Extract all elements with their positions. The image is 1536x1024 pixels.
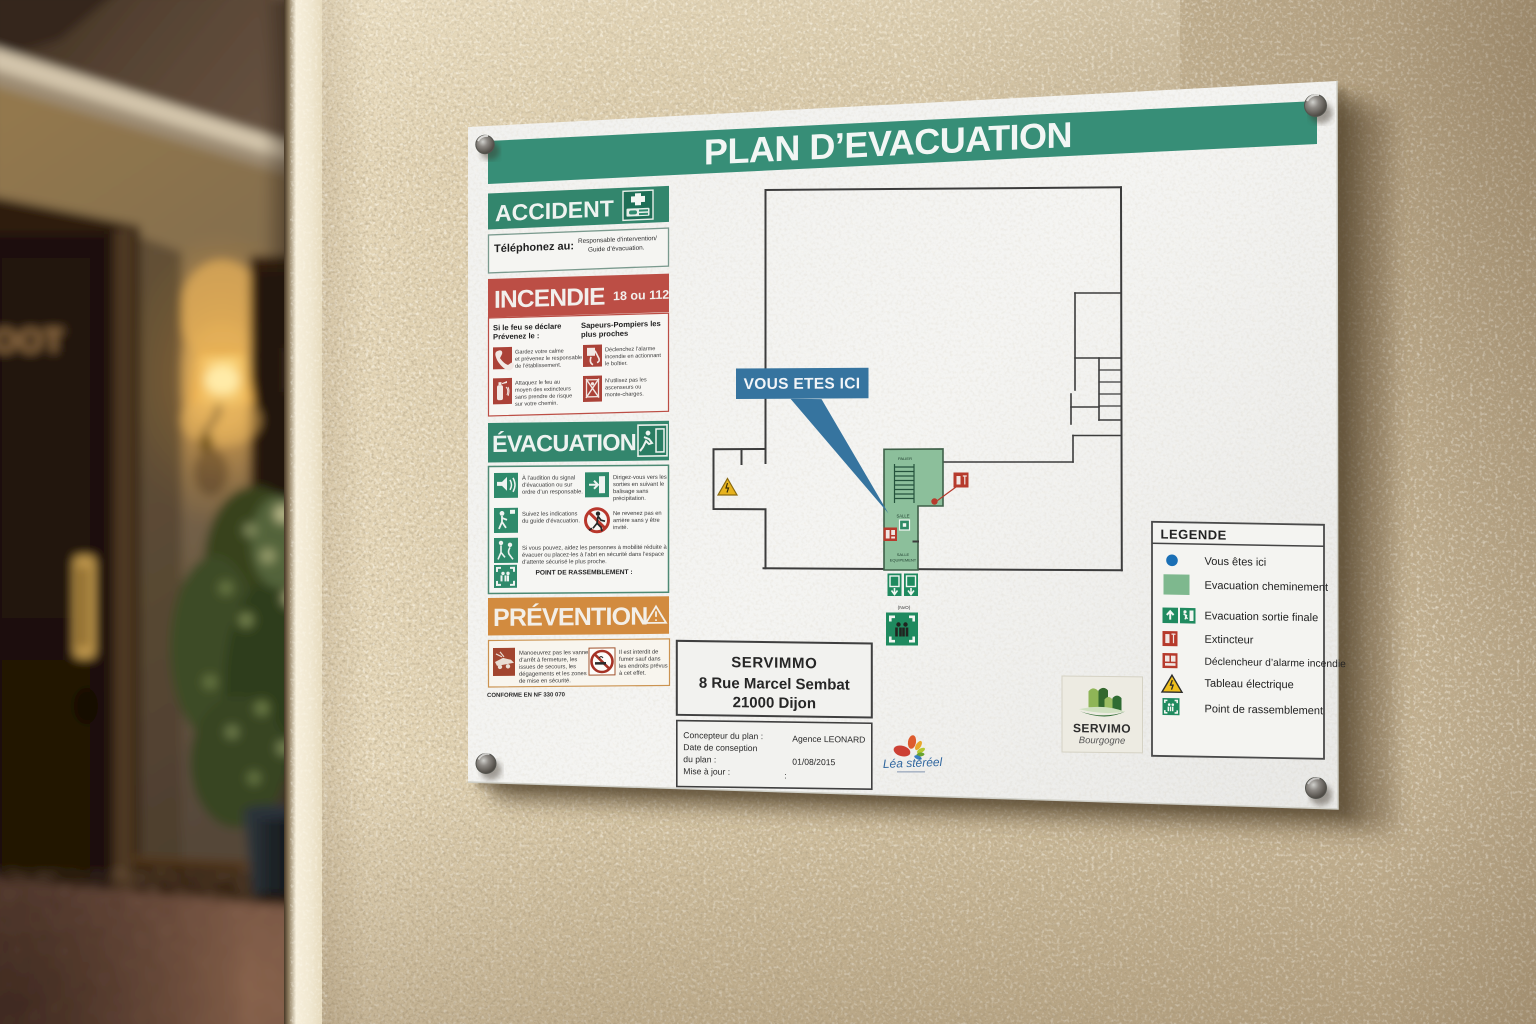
svg-text:Concepteur du plan :: Concepteur du plan :: [683, 730, 763, 741]
svg-text:du plan :: du plan :: [683, 754, 716, 764]
svg-text:d’évacuation ou sur: d’évacuation ou sur: [522, 482, 572, 488]
svg-text:ordre d’un responsable.: ordre d’un responsable.: [522, 489, 583, 495]
svg-text:monte-charges.: monte-charges.: [605, 391, 644, 398]
svg-text:de l’établissement.: de l’établissement.: [515, 363, 562, 370]
svg-text:(NvO): (NvO): [898, 605, 911, 611]
svg-text:Mise à jour :: Mise à jour :: [683, 766, 730, 777]
svg-text:POINT DE RASSEMBLEMENT :: POINT DE RASSEMBLEMENT :: [535, 569, 632, 577]
svg-text:ACCIDENT: ACCIDENT: [495, 195, 614, 226]
svg-text:SERVIMO: SERVIMO: [1073, 721, 1131, 736]
svg-text:ascenseurs ou: ascenseurs ou: [605, 384, 641, 391]
svg-text:LEGENDE: LEGENDE: [1161, 526, 1227, 542]
svg-text:Dirigez-vous vers les: Dirigez-vous vers les: [613, 475, 667, 481]
svg-text:balisage sans: balisage sans: [613, 489, 649, 495]
svg-text:sur votre chemin.: sur votre chemin.: [515, 401, 558, 408]
svg-text:Si vous pouvez, aidez les pers: Si vous pouvez, aidez les personnes à mo…: [522, 545, 667, 552]
svg-text:EQUIPEMENT: EQUIPEMENT: [890, 558, 917, 563]
svg-text:plus proches: plus proches: [581, 329, 628, 339]
svg-text:invité.: invité.: [613, 525, 629, 531]
svg-text:21000 Dijon: 21000 Dijon: [733, 694, 816, 712]
svg-text:Date de conseption: Date de conseption: [683, 742, 757, 753]
svg-text:d’arrêt à fermeture, les: d’arrêt à fermeture, les: [519, 657, 577, 664]
svg-text:Léa stéréel: Léa stéréel: [883, 755, 943, 771]
svg-text:Suivez les indications: Suivez les indications: [522, 511, 578, 517]
svg-text:Il est interdit de: Il est interdit de: [619, 650, 658, 656]
svg-text:Ne revenez pas en: Ne revenez pas en: [613, 511, 662, 517]
svg-text:Evacuation sortie finale: Evacuation sortie finale: [1205, 610, 1319, 624]
svg-text:à cet effet.: à cet effet.: [619, 671, 646, 677]
svg-text:Evacuation cheminement: Evacuation cheminement: [1205, 580, 1329, 594]
svg-text:Point de rassemblement: Point de rassemblement: [1205, 703, 1324, 717]
svg-text:N’utilisez pas les: N’utilisez pas les: [605, 377, 647, 384]
svg-text:SERVIMMO: SERVIMMO: [731, 654, 817, 672]
svg-text:VOUS ETES ICI: VOUS ETES ICI: [744, 375, 861, 393]
svg-text:d’attente sécurisé le plus pro: d’attente sécurisé le plus proche.: [522, 559, 607, 566]
svg-text:Prévenez le :: Prévenez le :: [493, 331, 539, 341]
svg-text:fumer sauf dans: fumer sauf dans: [619, 656, 661, 662]
svg-text:Manoeuvrez pas les vannes: Manoeuvrez pas les vannes: [519, 650, 591, 657]
svg-text:À l’audition du signal: À l’audition du signal: [522, 474, 575, 481]
svg-text:01/08/2015: 01/08/2015: [792, 757, 835, 768]
svg-text:Tableau électrique: Tableau électrique: [1205, 678, 1294, 692]
svg-text:Vous êtes ici: Vous êtes ici: [1205, 556, 1267, 569]
svg-text:8 Rue Marcel Sembat: 8 Rue Marcel Sembat: [699, 675, 850, 694]
svg-text:CONFORME EN NF 330 070: CONFORME EN NF 330 070: [487, 692, 566, 699]
svg-text:le boîtier.: le boîtier.: [605, 361, 628, 368]
svg-text:issues de secours, les: issues de secours, les: [519, 664, 576, 670]
svg-text:OOT: OOT: [0, 322, 64, 359]
svg-text:sorties en suivant le: sorties en suivant le: [613, 482, 664, 488]
svg-text:SALLE: SALLE: [897, 552, 910, 557]
svg-text:les endroits prévus: les endroits prévus: [619, 663, 668, 669]
svg-text:dégagements et les zones: dégagements et les zones: [519, 671, 587, 678]
svg-text:SALLE: SALLE: [896, 514, 909, 519]
svg-text:INCENDIE: INCENDIE: [494, 284, 605, 314]
svg-text:18 ou 112: 18 ou 112: [613, 288, 669, 304]
svg-text:Extincteur: Extincteur: [1205, 634, 1254, 647]
svg-text:Attaquez le feu au: Attaquez le feu au: [515, 380, 560, 387]
svg-text:arrière sans y être: arrière sans y être: [613, 518, 660, 524]
svg-text:Agence LEONARD: Agence LEONARD: [792, 734, 865, 745]
svg-text:évacuer ou placez-les à l’abri: évacuer ou placez-les à l’abri en sécuri…: [522, 552, 664, 559]
svg-text:du guide d’évacuation.: du guide d’évacuation.: [522, 518, 580, 524]
svg-text:PALIER: PALIER: [898, 456, 912, 461]
svg-text:de mise en sécurité.: de mise en sécurité.: [519, 678, 571, 684]
svg-text:Gardez votre calme: Gardez votre calme: [515, 349, 564, 356]
svg-text:Bourgogne: Bourgogne: [1079, 735, 1125, 746]
svg-text:PRÉVENTION: PRÉVENTION: [493, 601, 648, 631]
svg-text:ÉVACUATION: ÉVACUATION: [492, 428, 636, 457]
svg-text::: :: [784, 771, 786, 781]
svg-text:précipitation.: précipitation.: [613, 496, 646, 502]
